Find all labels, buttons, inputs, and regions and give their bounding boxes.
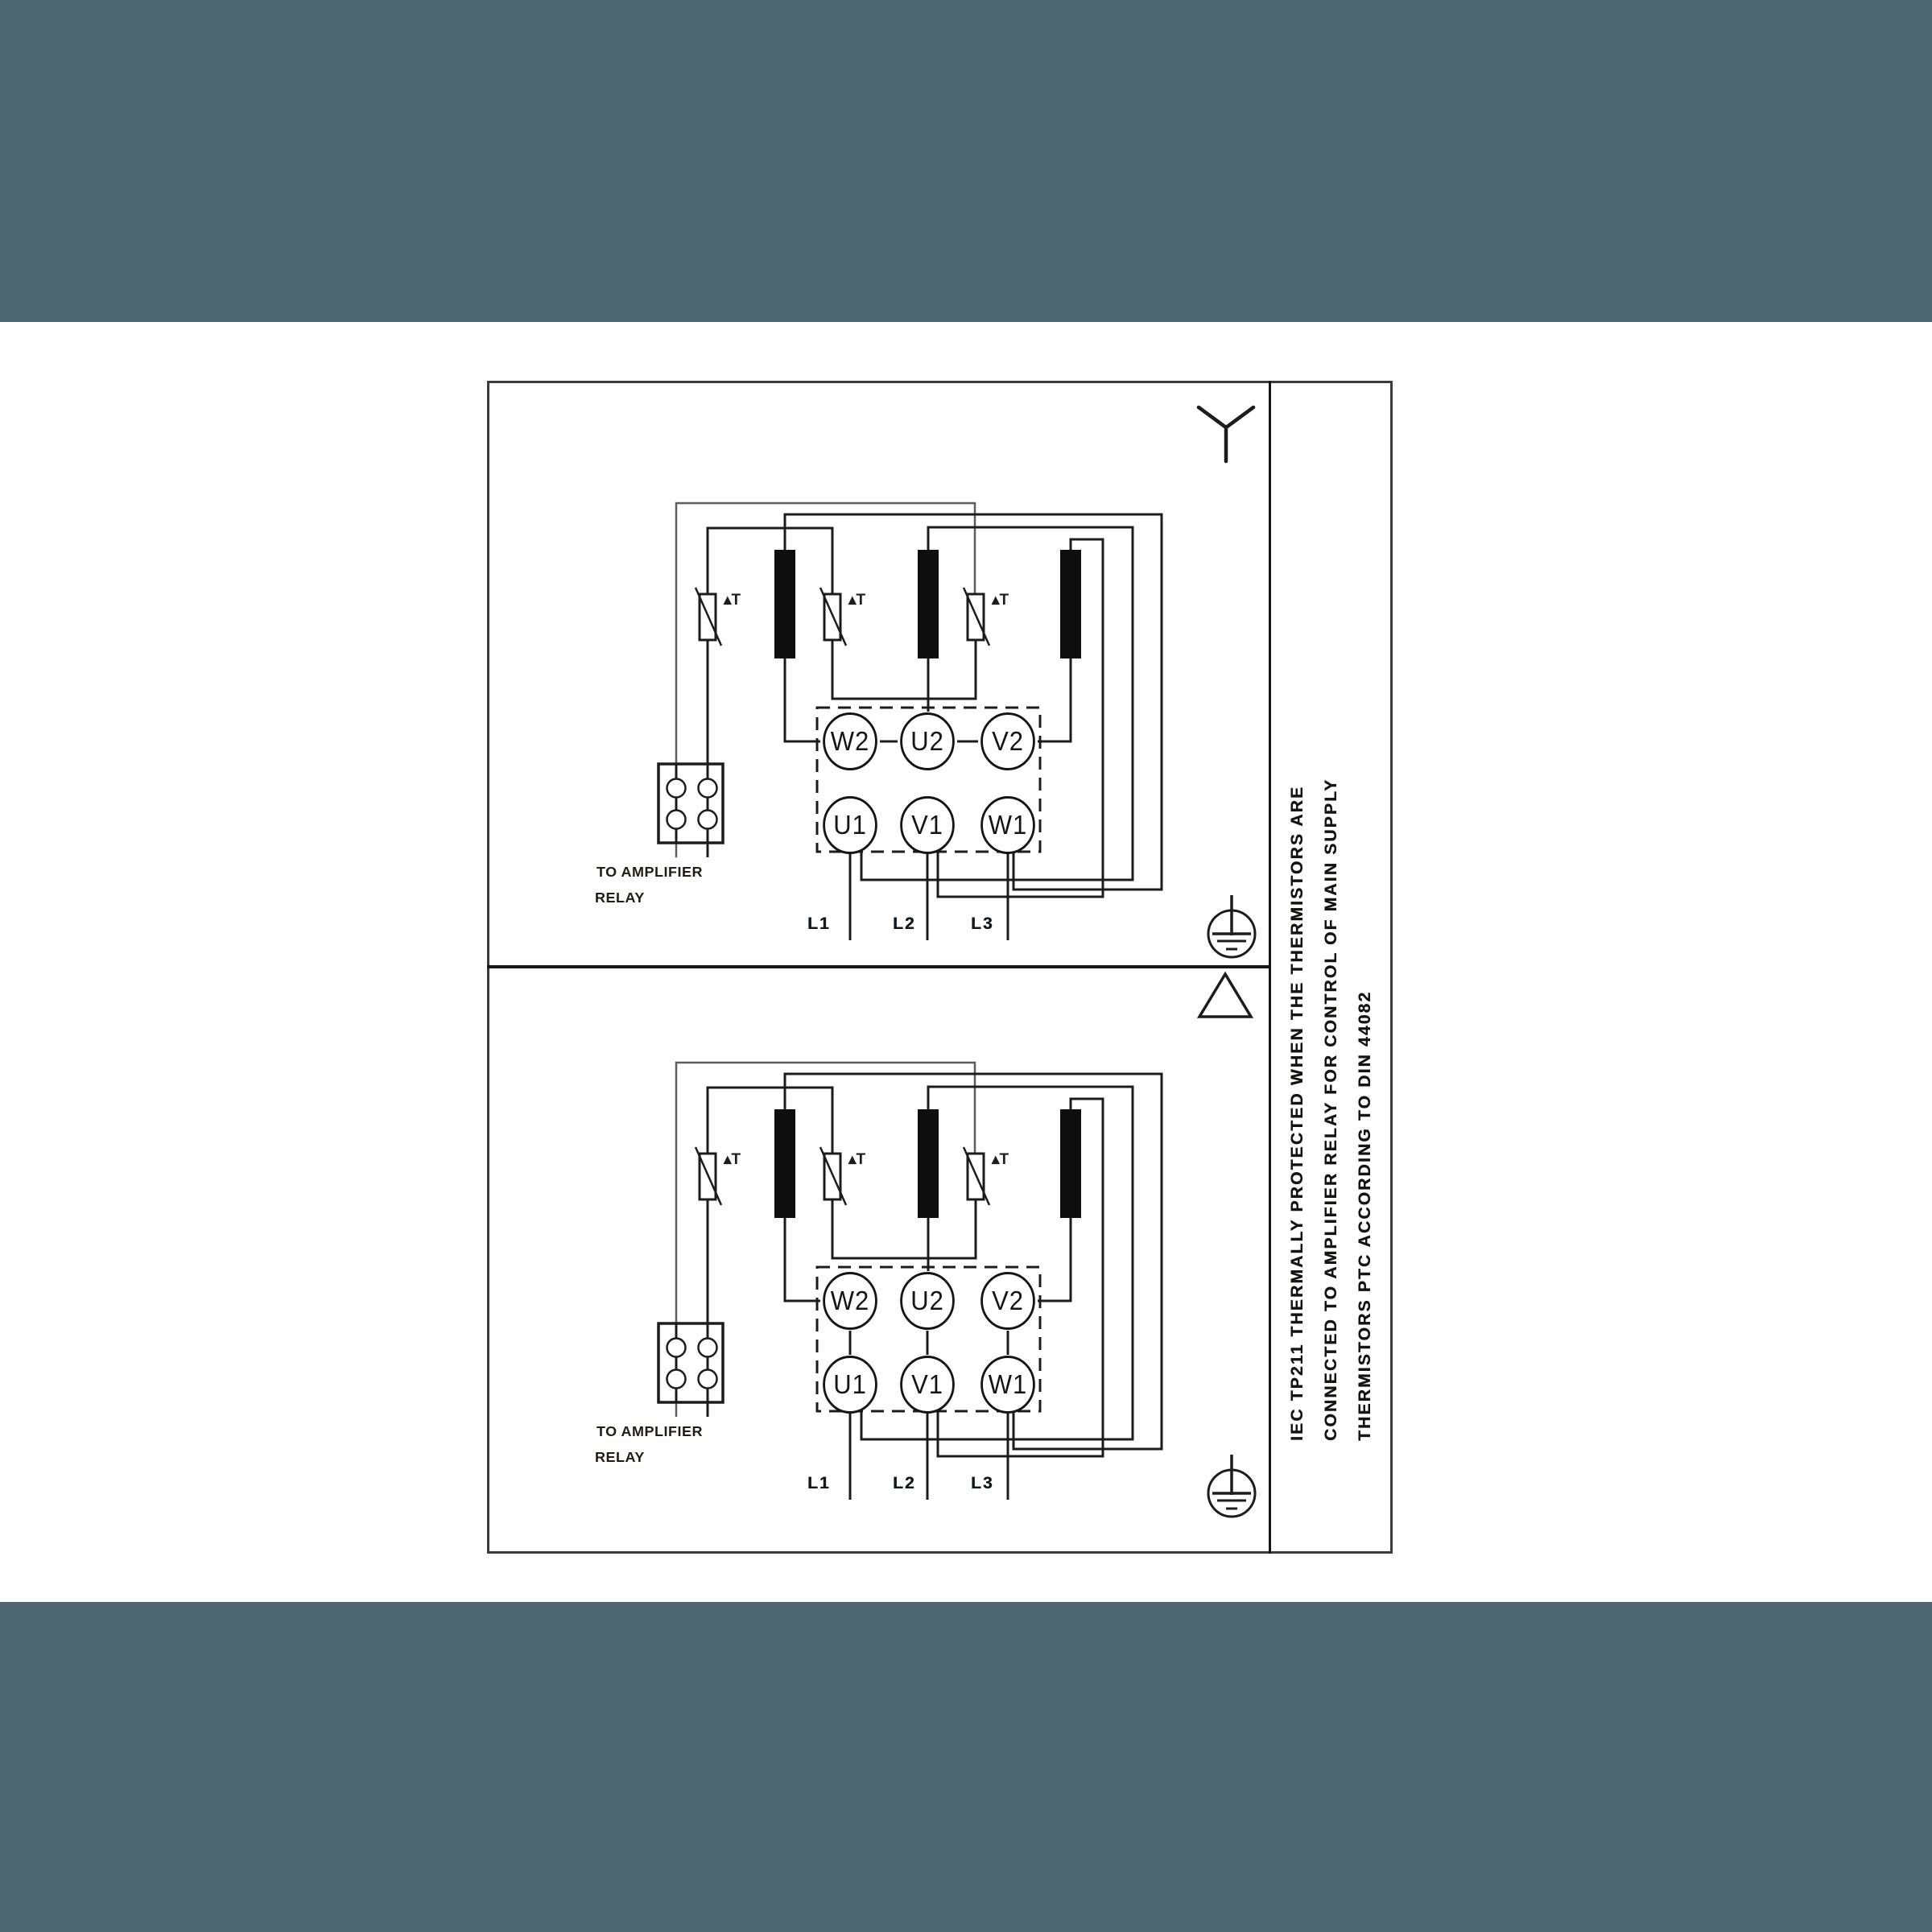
- supply-label-L3: L3: [971, 1474, 1009, 1493]
- winding1-to-terminal-wire: [785, 1218, 820, 1301]
- terminal-U2: U2: [900, 712, 955, 770]
- winding-icon: [918, 550, 939, 658]
- relay-caption-line1: TO AMPLIFIER: [597, 1423, 703, 1439]
- note-column-divider: [1269, 381, 1271, 1554]
- top-margin-band: [0, 0, 1932, 322]
- delta-connection-icon: [1199, 974, 1251, 1017]
- terminal-W1: W1: [980, 796, 1035, 854]
- thermistor-label: ▴T: [992, 1150, 1009, 1169]
- terminal-W2: W2: [823, 1272, 877, 1330]
- relay-caption-line2: RELAY: [595, 1449, 645, 1465]
- side-note-line2: CONNECTED TO AMPLIFIER RELAY FOR CONTROL…: [1315, 773, 1348, 1441]
- terminal-U2: U2: [900, 1272, 955, 1330]
- supply-label-L2: L2: [893, 914, 931, 934]
- supply-label-L2: L2: [893, 1474, 931, 1493]
- winding3-to-terminal-wire: [1038, 1218, 1071, 1301]
- thermistor-label: ▴T: [848, 1150, 865, 1169]
- thermistor-icon: [820, 588, 846, 646]
- side-note-line1: IEC TP211 THERMALLY PROTECTED WHEN THE T…: [1281, 773, 1315, 1441]
- terminal-U1: U1: [823, 796, 877, 854]
- winding-icon: [774, 550, 795, 658]
- thermistor-icon: [820, 1147, 846, 1205]
- terminal-V1: V1: [900, 1356, 955, 1414]
- winding3-to-terminal-wire: [1038, 658, 1071, 741]
- relay-caption-line1: TO AMPLIFIER: [597, 864, 703, 880]
- star-connection-section: W2 U2 V2 U1 V1 W1 L1 L2 L3 TO AMPLIFIER …: [487, 381, 1270, 968]
- terminal-V2: V2: [980, 1272, 1035, 1330]
- relay-connector-icon: [658, 1323, 723, 1402]
- thermistor-icon: [964, 1147, 989, 1205]
- relay-connector-icon: [658, 764, 723, 843]
- terminal-V1: V1: [900, 796, 955, 854]
- winding-icon: [774, 1109, 795, 1218]
- thermistor-label: ▴T: [848, 591, 865, 609]
- thermistor-icon: [696, 588, 721, 646]
- bottom-margin-band: [0, 1602, 1932, 1932]
- winding-icon: [1060, 1109, 1081, 1218]
- delta-connection-section: W2 U2 V2 U1 V1 W1 L1 L2 L3 TO AMPLIFIER …: [487, 940, 1270, 1554]
- terminal-V2: V2: [980, 712, 1035, 770]
- supply-label-L1: L1: [807, 1474, 846, 1493]
- delta-bridge-wires: [850, 1331, 1008, 1355]
- terminal-W2: W2: [823, 712, 877, 770]
- thermistor-icon: [964, 588, 989, 646]
- winding-icon: [918, 1109, 939, 1218]
- supply-label-L3: L3: [971, 914, 1009, 934]
- section-divider: [487, 965, 1270, 968]
- thermistor-label: ▴T: [724, 591, 741, 609]
- side-note-text: IEC TP211 THERMALLY PROTECTED WHEN THE T…: [1281, 773, 1382, 1441]
- thermistor-label: ▴T: [724, 1150, 741, 1169]
- earth-ground-icon: [1208, 1455, 1255, 1517]
- side-note-line3: THERMISTORS PTC ACCORDING TO DIN 44082: [1348, 773, 1382, 1441]
- thermistor-label: ▴T: [992, 591, 1009, 609]
- terminal-W1: W1: [980, 1356, 1035, 1414]
- relay-caption-line2: RELAY: [595, 890, 645, 906]
- thermistor-icon: [696, 1147, 721, 1205]
- terminal-U1: U1: [823, 1356, 877, 1414]
- star-connection-icon: [1199, 407, 1253, 461]
- winding-icon: [1060, 550, 1081, 658]
- supply-label-L1: L1: [807, 914, 846, 934]
- winding1-to-terminal-wire: [785, 658, 820, 741]
